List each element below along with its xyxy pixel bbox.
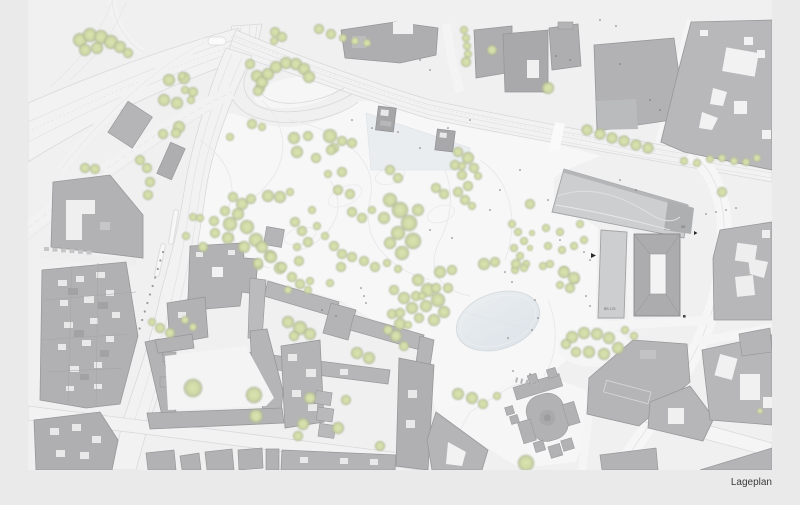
svg-text:BB: BB [681,225,685,229]
svg-text:BB 123: BB 123 [604,307,616,311]
svg-text:Lageplan: Lageplan [731,477,772,488]
